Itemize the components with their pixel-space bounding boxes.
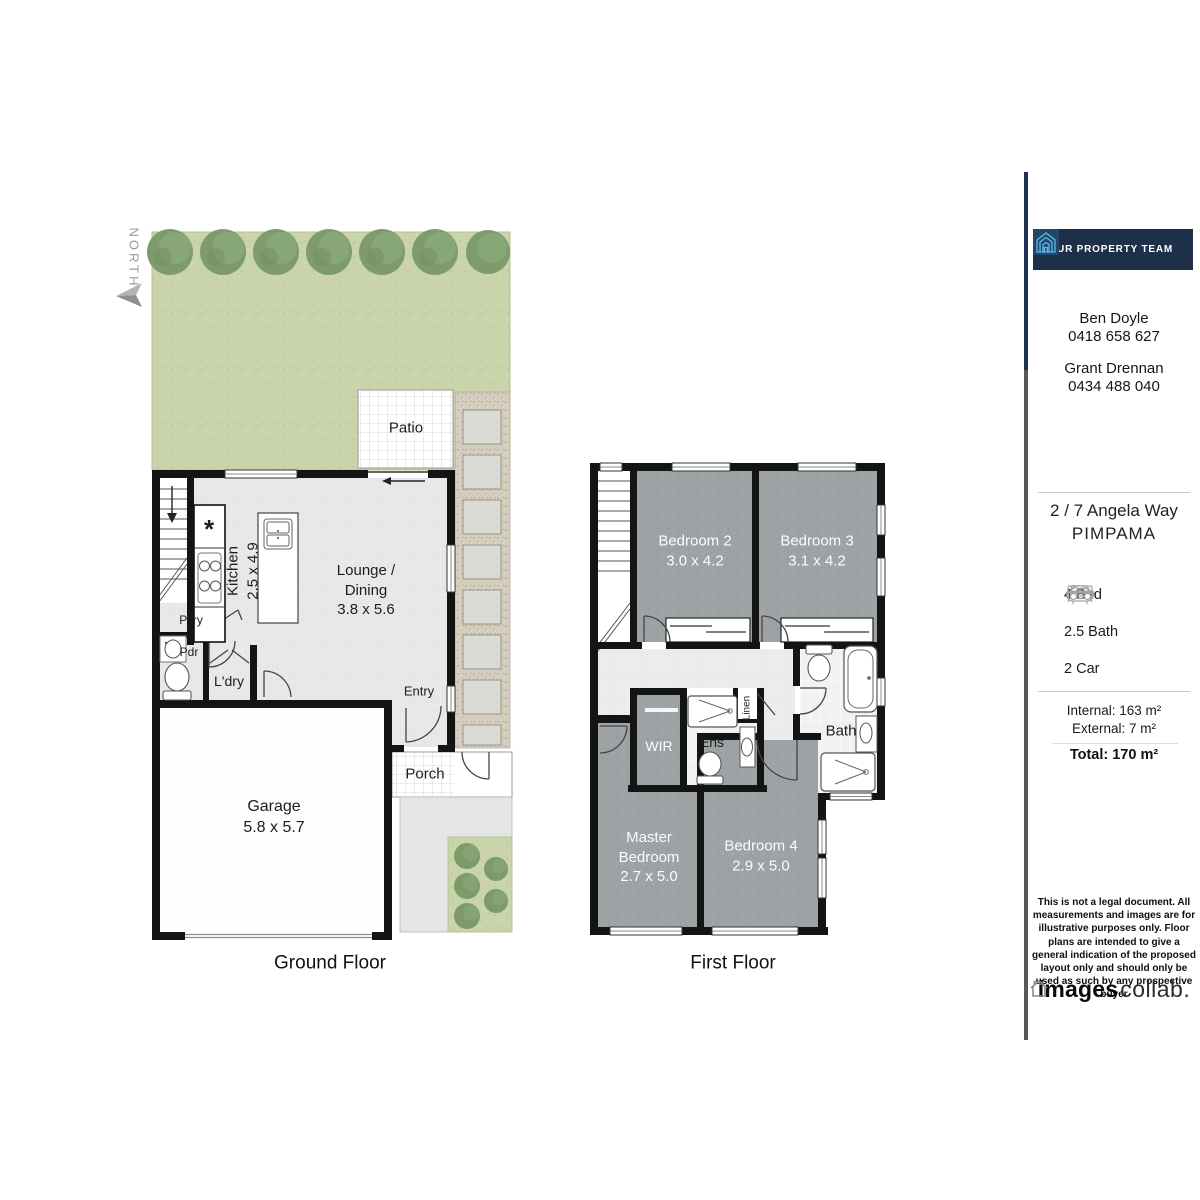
entry-label: Entry (404, 684, 434, 701)
ensuite-label: Ens (700, 733, 724, 751)
powder-label: Pdr (180, 645, 199, 661)
bedroom4-label: Bedroom 4 2.9 x 5.0 (724, 837, 797, 876)
internal-area: Internal: 163 m² (1028, 702, 1200, 720)
brand-name: YOUR PROPERTY TEAM (1041, 244, 1173, 255)
basin-icon (740, 727, 755, 767)
bath-label: Bath (826, 721, 857, 741)
cooktop-icon (198, 553, 221, 603)
house-outline-icon (1028, 976, 1050, 1000)
feature-label: 2 Car (1064, 661, 1099, 677)
laundry-label: L'dry (214, 672, 244, 690)
lounge-label: Lounge / Dining 3.8 x 5.6 (337, 561, 395, 620)
sidebar-divider (1038, 492, 1190, 493)
logo-text-light: collab. (1120, 976, 1190, 1003)
feature-baths: 2.5 Bath (1064, 619, 1118, 644)
shower-icon (688, 696, 737, 727)
kitchen-island (258, 513, 298, 623)
agent-phone: 0418 658 627 (1028, 328, 1200, 346)
entry-floor (392, 700, 447, 747)
address-suburb: PIMPAMA (1028, 523, 1200, 546)
agent: Grant Drennan 0434 488 040 (1028, 360, 1200, 397)
sidebar-divider-line (1024, 172, 1028, 1040)
shower-icon (821, 753, 875, 791)
toilet-icon (806, 645, 832, 681)
linen-label: Linen (741, 696, 754, 720)
patio-label: Patio (389, 418, 423, 438)
kitchen-symbol: * (204, 513, 214, 547)
property-address: 2 / 7 Angela Way PIMPAMA (1028, 500, 1200, 546)
stairs-first (598, 471, 630, 651)
total-area: Total: 170 m² (1028, 747, 1200, 763)
feature-label: 2.5 Bath (1064, 624, 1118, 640)
agent-name: Grant Drennan (1028, 360, 1200, 378)
pantry-label: P'try (179, 613, 203, 629)
sidebar-divider (1038, 691, 1190, 692)
toilet-icon (697, 752, 723, 784)
agent-name: Ben Doyle (1028, 310, 1200, 328)
toilet-icon (163, 663, 191, 700)
stepping-pavers (463, 410, 501, 745)
floorplan-page: NORTH Patio Kitchen 2.5 x 4.9 * Lounge /… (0, 0, 1200, 1200)
stairs-ground (159, 478, 187, 603)
kitchen-label: Kitchen 2.5 x 4.9 (224, 542, 263, 600)
porch-label: Porch (405, 764, 444, 784)
garage-label: Garage 5.8 x 5.7 (243, 797, 304, 839)
bedroom3-label: Bedroom 3 3.1 x 4.2 (780, 532, 853, 571)
property-team-logo-icon (1033, 229, 1059, 255)
agent: Ben Doyle 0418 658 627 (1028, 310, 1200, 347)
car-icon (1064, 582, 1096, 602)
areas-block: Internal: 163 m² External: 7 m² (1028, 702, 1200, 737)
agent-phone: 0434 488 040 (1028, 378, 1200, 396)
floor-plan-svg (0, 0, 1200, 1200)
master-label: Master Bedroom 2.7 x 5.0 (619, 828, 680, 887)
feature-cars: 2 Car (1064, 656, 1118, 681)
ground-floor-title: Ground Floor (274, 952, 386, 977)
ground-floor-plan (116, 229, 512, 940)
features-list: 4 Bed 2.5 Bath 2 Car (1064, 582, 1118, 681)
external-area: External: 7 m² (1028, 720, 1200, 738)
bathtub-icon (844, 646, 877, 712)
address-street: 2 / 7 Angela Way (1028, 500, 1200, 523)
agents-block: Ben Doyle 0418 658 627 Grant Drennan 043… (1028, 310, 1200, 409)
imagescollab-logo: imagescollab. (1028, 976, 1200, 1003)
areas-divider (1052, 743, 1178, 744)
bedroom2-label: Bedroom 2 3.0 x 4.2 (658, 532, 731, 571)
brand-banner: YOUR PROPERTY TEAM (1033, 229, 1193, 270)
basin-icon (856, 716, 877, 752)
north-label: NORTH (125, 228, 142, 289)
first-floor-title: First Floor (690, 952, 776, 977)
wir-label: WIR (645, 737, 672, 755)
